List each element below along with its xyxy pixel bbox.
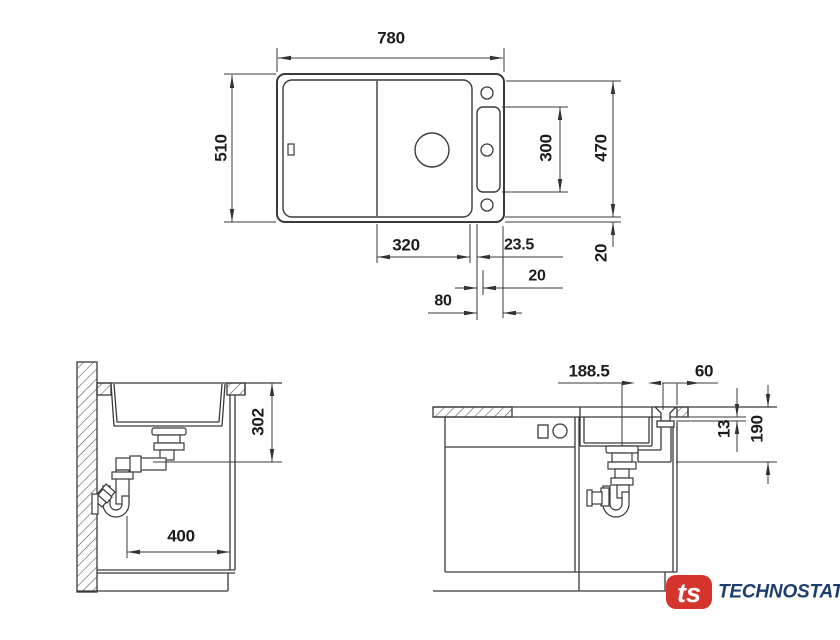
drain-hole (415, 133, 449, 167)
dim-188-5-label: 188.5 (568, 362, 609, 381)
overflow-slot (288, 144, 294, 155)
logo-mark-icon: ts (677, 578, 701, 608)
drain-flange (152, 428, 186, 435)
wall-flange (92, 494, 98, 514)
worktop-hatch-left (97, 383, 111, 395)
drain-flange (606, 446, 638, 453)
dim-320-label: 320 (392, 236, 419, 255)
strainer-nut (608, 462, 636, 469)
worktop-hatch-right (677, 407, 688, 417)
tap-hole-bottom (481, 199, 493, 211)
dim-190-label: 190 (748, 415, 767, 442)
dim-20-offset-label: 20 (528, 268, 546, 285)
dim-400-label: 400 (167, 527, 194, 546)
dim-470-label: 470 (592, 134, 611, 161)
top-view: 780 510 470 300 20 320 23.5 20 80 (212, 29, 622, 321)
side-view: 302 400 (77, 362, 282, 592)
dim-780-label: 780 (377, 29, 404, 48)
dim-60-label: 60 (695, 362, 713, 381)
front-view: 188.5 60 13 190 (433, 362, 777, 592)
top-view-labels: 780 510 470 300 20 320 23.5 20 80 (212, 29, 611, 310)
dim-23-5-label: 23.5 (504, 237, 534, 254)
brand-logo: ts TECHNOSTATUS (666, 575, 840, 609)
worktop-hatch-right (227, 383, 245, 395)
front-view-plumbing (587, 446, 638, 517)
dim-20-rim-label: 20 (592, 244, 611, 262)
front-view-dimension-lines (558, 383, 777, 484)
technical-drawing: 780 510 470 300 20 320 23.5 20 80 (0, 0, 840, 640)
overflow-nut (657, 421, 674, 427)
bowl-section (111, 384, 225, 426)
dim-302-label: 302 (249, 408, 268, 435)
front-panel-switch (538, 425, 548, 438)
strainer-nut (154, 443, 184, 450)
strainer-body (612, 453, 632, 462)
dim-13-label: 13 (715, 420, 734, 438)
outlet-cap (587, 490, 592, 506)
side-view-structure (77, 362, 282, 592)
sink-outline (277, 74, 504, 222)
pipe-nut-2 (112, 472, 133, 479)
worktop-hatch-left (433, 407, 512, 417)
overflow-pipe (638, 407, 676, 462)
dim-80-label: 80 (434, 293, 452, 310)
pipe-nut (611, 478, 633, 485)
tap-hole-middle (481, 144, 493, 156)
bowl-section (580, 407, 652, 446)
dim-510-label: 510 (212, 134, 231, 161)
dim-300-label: 300 (537, 134, 556, 161)
top-view-arrowheads (230, 56, 615, 315)
pipe-nut (130, 456, 141, 472)
strainer-body (158, 435, 180, 443)
front-panel-knob (553, 424, 567, 438)
drawing-canvas: 780 510 470 300 20 320 23.5 20 80 (0, 0, 840, 640)
tap-hole-top (481, 87, 493, 99)
logo-brand-text: TECHNOSTATUS (718, 582, 840, 603)
wall-section (77, 362, 97, 592)
side-view-plumbing (92, 428, 186, 517)
